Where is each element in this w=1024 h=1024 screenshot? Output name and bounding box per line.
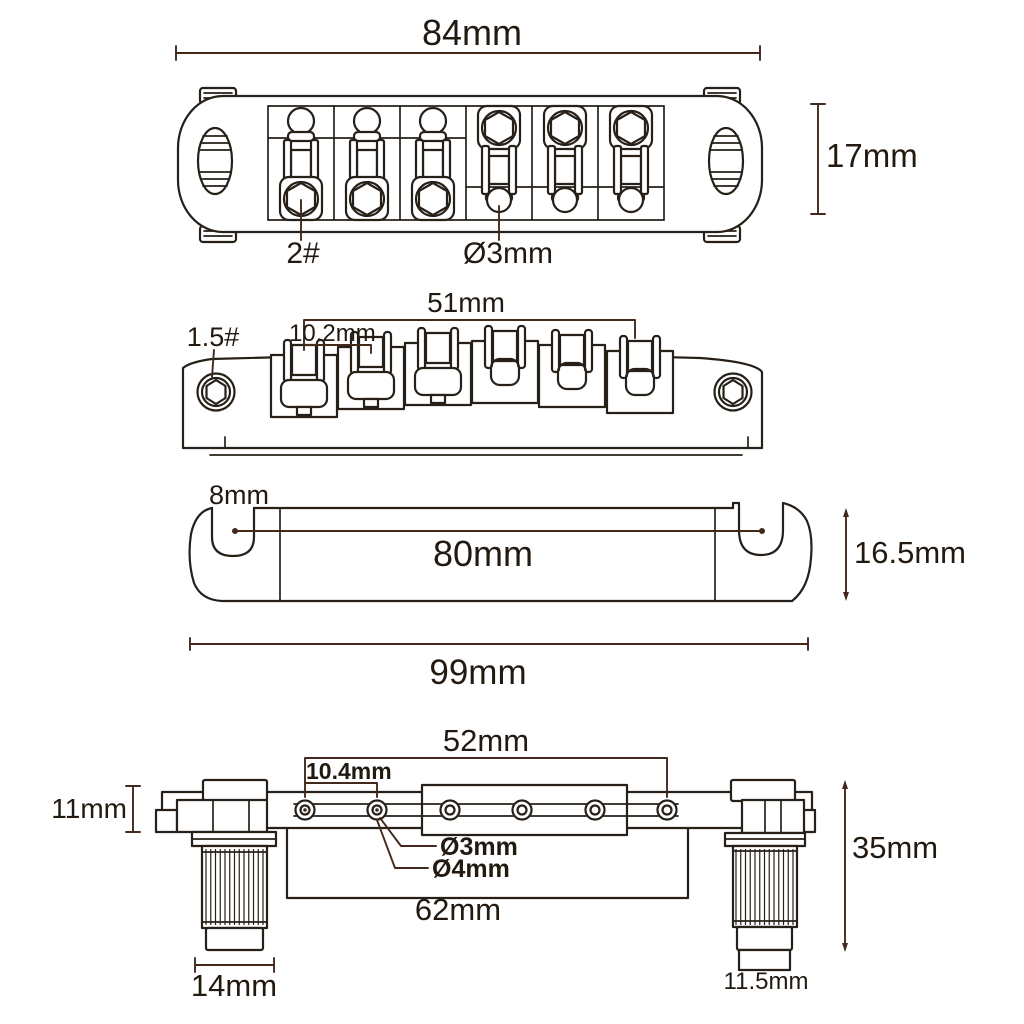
dim-notch-width: 8mm (209, 480, 269, 510)
bushing-width-label: 14mm (191, 968, 277, 1003)
bridge-top-view: 84mm 17mm 2# Ø3mm (176, 12, 918, 270)
bridge-front-view: 51mm 10.2mm 1.5# (183, 287, 762, 455)
dim-body-width: 62mm (415, 892, 501, 927)
saddle-span-label: 51mm (427, 287, 505, 318)
tailpiece-back-view: 52mm 10.4mm 11mm Ø3mm Ø4mm 62mm 35mm (51, 723, 938, 1003)
wrench-size-label: 1.5# (187, 322, 240, 352)
dim-bridge-height: 17mm (811, 104, 918, 214)
left-mounting-stud (177, 780, 276, 950)
head-height-label: 11mm (51, 793, 127, 824)
stud-width-label: 11.5mm (724, 968, 809, 995)
hole-spacing-label: 10.4mm (306, 758, 392, 784)
dim-stud-height: 35mm (842, 780, 938, 952)
technical-drawing: 84mm 17mm 2# Ø3mm (0, 0, 1024, 1024)
dim-bushing-width: 14mm (191, 958, 277, 1003)
diagram-canvas: 84mm 17mm 2# Ø3mm (0, 0, 1024, 1024)
dim-tailpiece-height: 16.5mm (843, 508, 966, 601)
string-spacing-label: 10.2mm (289, 320, 376, 347)
bridge-body-outline (178, 96, 762, 232)
notch-width-label: 8mm (209, 480, 269, 510)
dim-bridge-width: 84mm (176, 12, 760, 60)
tailpiece-height-label: 16.5mm (854, 535, 966, 570)
bridge-height-label: 17mm (826, 137, 918, 174)
right-mounting-post (715, 374, 752, 411)
dim-stud-width: 11.5mm (724, 968, 809, 995)
dim-anchor-span: 80mm (232, 528, 765, 574)
hole-span-label: 52mm (443, 723, 529, 758)
dim-head-height: 11mm (51, 786, 140, 832)
dim-overall-width: 99mm (190, 638, 808, 692)
anchor-span-label: 80mm (433, 533, 533, 574)
anchor-hole-label: Ø4mm (432, 855, 510, 883)
screw-gauge-label: 2# (286, 237, 320, 270)
overall-width-label: 99mm (429, 653, 526, 692)
string-hole-top-label: Ø3mm (463, 237, 553, 270)
stud-height-label: 35mm (852, 830, 938, 865)
bridge-width-label: 84mm (422, 12, 522, 53)
left-mounting-post (198, 374, 235, 411)
tailpiece-side-view: 80mm 8mm 16.5mm 99mm (190, 480, 966, 692)
body-width-label: 62mm (415, 892, 501, 927)
